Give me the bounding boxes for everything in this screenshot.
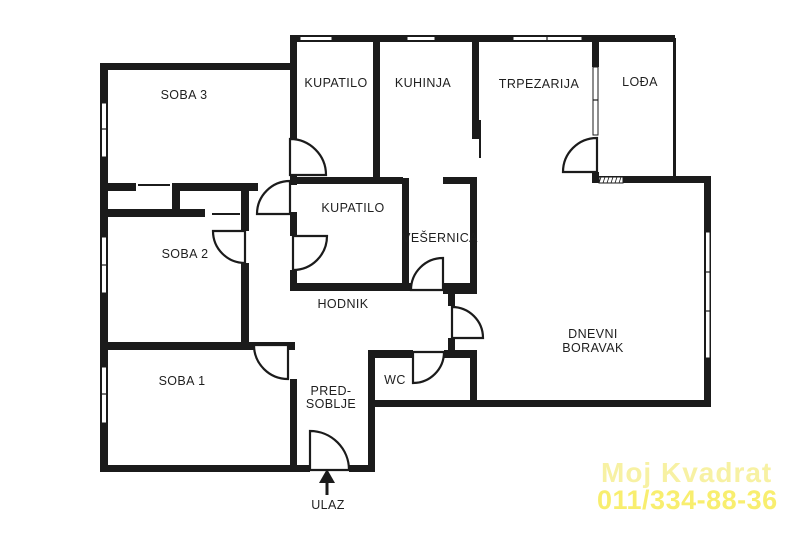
wall-segment <box>100 465 310 472</box>
wall-segment <box>100 183 136 191</box>
opening-line <box>212 213 240 215</box>
wall-segment <box>100 63 293 70</box>
watermark-line2: 011/334-88-36 <box>597 485 778 515</box>
door-soba-2 <box>213 231 245 263</box>
window <box>407 37 435 41</box>
window <box>102 367 107 423</box>
door-soba-1 <box>254 345 288 379</box>
room-label-wc: WC <box>384 373 406 387</box>
room-label-lodja: LOĐA <box>622 75 658 89</box>
door-lodja <box>563 138 597 172</box>
door-kupatilo-mid <box>293 236 327 270</box>
wall-segment <box>592 35 599 67</box>
wall-segment <box>290 212 297 236</box>
wall-segment <box>368 350 413 358</box>
window <box>102 103 107 157</box>
wall-segment <box>470 350 477 407</box>
door-dnevni <box>452 307 483 338</box>
room-label-soba-3: SOBA 3 <box>161 88 208 102</box>
door-ulaz <box>310 431 349 470</box>
door-kupatilo-top <box>290 139 326 175</box>
room-label-vesernica: VEŠERNICA <box>402 230 478 245</box>
opening-line <box>479 120 481 158</box>
floor-plan: SOBA 3KUPATILOKUHINJATRPEZARIJALOĐAKUPAT… <box>0 0 800 533</box>
watermark-line1: Moj Kvadrat <box>601 457 772 488</box>
door-vesernica <box>411 258 443 290</box>
room-label-soba-1: SOBA 1 <box>159 374 206 388</box>
window <box>706 232 711 358</box>
opening-line <box>138 184 170 186</box>
room-label-ulaz: ULAZ <box>311 498 345 512</box>
room-label-hodnik: HODNIK <box>317 297 368 311</box>
wall-segment <box>448 291 455 306</box>
window <box>300 37 332 41</box>
wall-segment <box>290 177 403 184</box>
wall-segment <box>100 209 205 217</box>
wall-segment <box>373 35 380 184</box>
room-label-kupatilo-top: KUPATILO <box>304 76 367 90</box>
wall-segment <box>673 38 676 177</box>
room-label-kuhinja: KUHINJA <box>395 76 452 90</box>
door-wc <box>413 352 444 383</box>
door-niche <box>257 181 290 214</box>
wall-segment <box>293 283 412 291</box>
wall-segment <box>241 183 249 231</box>
room-label-trpezarija: TRPEZARIJA <box>499 77 580 91</box>
room-label-soba-2: SOBA 2 <box>162 247 209 261</box>
wall-segment <box>290 379 297 472</box>
wall-segment <box>368 400 711 407</box>
wall-segment <box>290 35 675 42</box>
wall-segment <box>368 350 375 472</box>
wall-segment <box>472 35 479 139</box>
room-label-predsoblje: PRED-SOBLJE <box>306 384 356 411</box>
room-label-kupatilo-mid: KUPATILO <box>321 201 384 215</box>
window <box>593 67 598 135</box>
wall-segment <box>290 35 297 139</box>
room-label-dnevni-boravak: DNEVNIBORAVAK <box>562 327 624 355</box>
floor-plan-svg: SOBA 3KUPATILOKUHINJATRPEZARIJALOĐAKUPAT… <box>0 0 800 533</box>
wall-segment <box>241 263 249 350</box>
